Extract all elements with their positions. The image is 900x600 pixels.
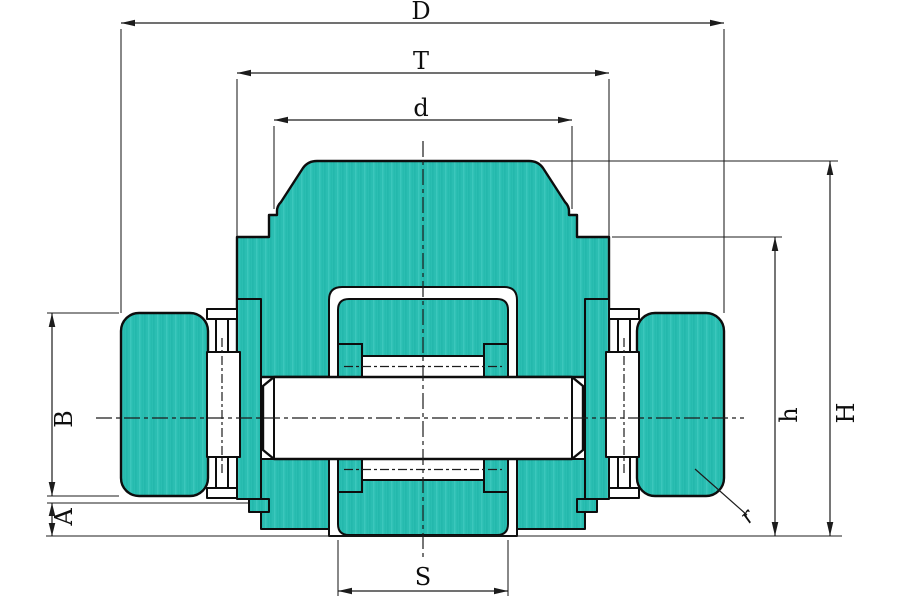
label-d: d	[413, 94, 428, 122]
dimension-B: B	[47, 313, 119, 496]
label-S: S	[415, 563, 431, 591]
label-h: h	[775, 407, 803, 422]
left-foot	[261, 459, 330, 529]
right-seal-ring	[637, 313, 724, 496]
technical-drawing-canvas: D T d B A S	[0, 0, 900, 600]
label-B: B	[50, 410, 78, 428]
left-stud-assembly	[207, 309, 240, 498]
label-H: H	[832, 403, 860, 424]
technical-drawing-page: D T d B A S	[0, 0, 900, 600]
right-bottom-tab	[577, 499, 597, 512]
right-stud-assembly	[606, 309, 639, 498]
label-T: T	[413, 47, 429, 75]
label-D: D	[411, 0, 430, 25]
left-bottom-tab	[249, 499, 269, 512]
label-A: A	[50, 508, 78, 527]
dimension-A: A	[47, 503, 248, 536]
shaft	[263, 377, 583, 459]
right-foot	[516, 459, 585, 529]
left-seal-ring	[121, 313, 208, 496]
label-r: r	[735, 503, 761, 528]
dimension-r: r	[695, 469, 760, 528]
